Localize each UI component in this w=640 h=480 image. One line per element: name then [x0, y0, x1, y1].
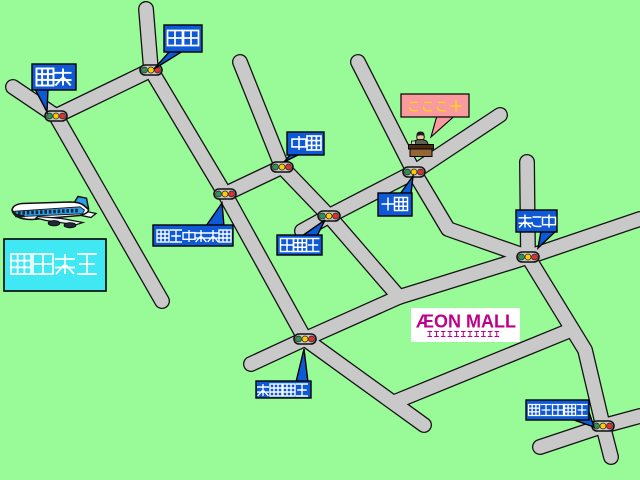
svg-text:ÆON MALL: ÆON MALL: [416, 312, 516, 332]
